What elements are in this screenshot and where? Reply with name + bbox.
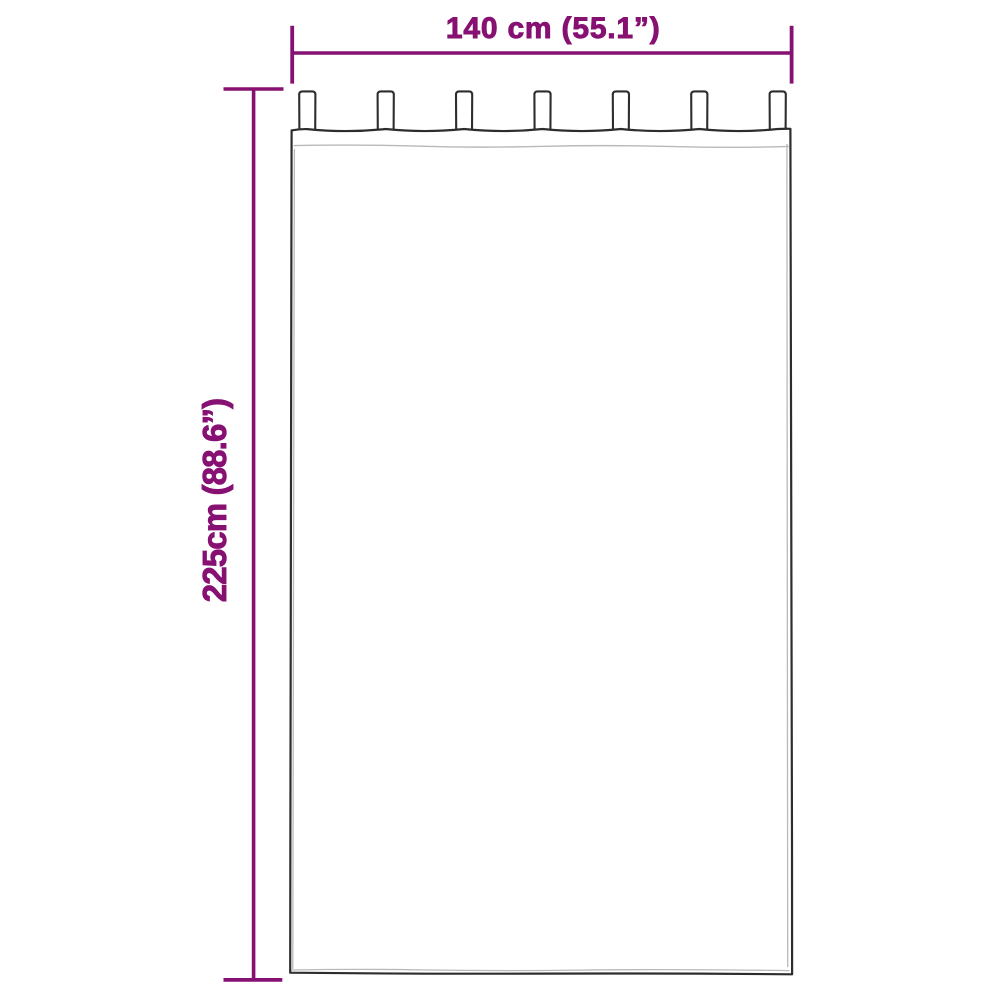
svg-text:225cm (88.6”): 225cm (88.6”) xyxy=(196,399,233,603)
svg-text:140 cm (55.1”): 140 cm (55.1”) xyxy=(446,12,661,45)
